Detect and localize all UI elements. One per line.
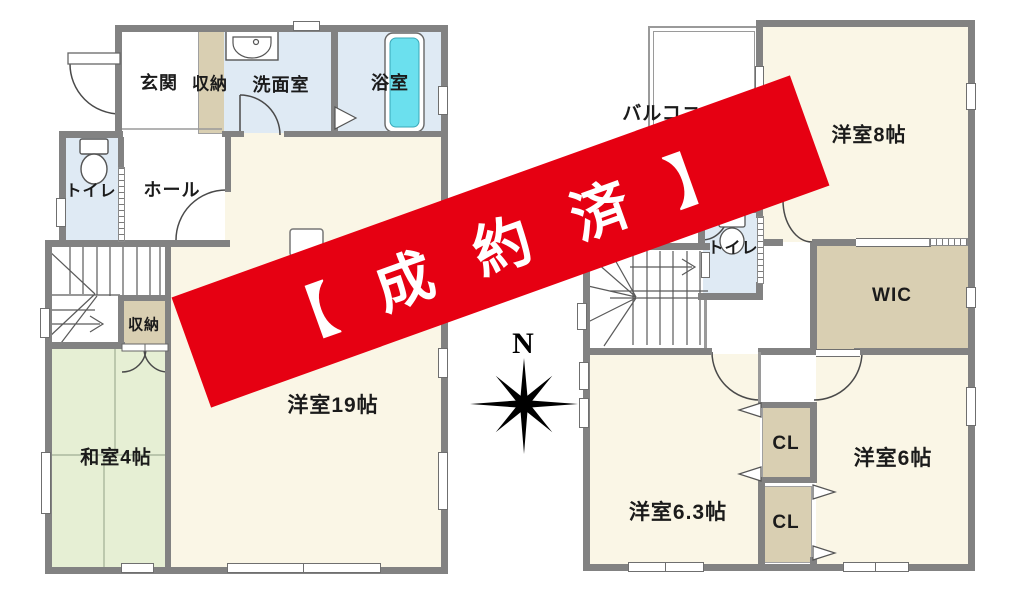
wall [331,28,338,133]
wall [854,348,975,355]
room-label-hall: ホール [144,176,201,202]
window [579,398,589,428]
wall [115,25,448,32]
wall [118,295,171,301]
wall [165,240,171,574]
bedroom6-door-opening [816,349,860,357]
window [579,362,589,390]
wall [45,342,125,349]
room-label-bathroom: 浴室 [371,69,409,95]
wall [810,557,817,565]
room-label-bedroom63: 洋室6.3帖 [629,496,727,526]
wall [45,240,230,247]
window [303,563,381,573]
wall [583,348,712,355]
window [56,198,66,227]
window [41,452,51,514]
room-label-japanese-room: 和室4帖 [80,443,152,470]
wall [284,131,448,137]
wall [758,483,765,565]
wall [115,25,122,137]
room-label-bedroom6: 洋室6帖 [854,442,933,472]
wall [810,402,817,483]
room-label-bedroom8: 洋室8帖 [831,119,906,148]
window [966,387,976,426]
room-label-washroom: 洗面室 [253,71,310,97]
wall [758,348,816,355]
wall [758,402,817,408]
wall [225,131,231,192]
wall [810,243,817,352]
window [227,563,304,573]
window [665,562,704,572]
wall [756,20,763,72]
wall [698,293,763,300]
compass-rose [470,358,578,454]
wall [118,137,124,169]
wall [967,239,975,246]
room-label-entry-storage: 収納 [192,70,228,95]
accordion-door-hatch [118,167,125,242]
wic-sliding-door [856,238,931,247]
wall [762,239,783,246]
floorplan-page: 玄関 収納 洗面室 浴室 トイレ ホール 収納 和室4帖 洋室19帖 バルコニー… [0,0,1024,596]
window [843,562,876,572]
window [966,287,976,308]
window [40,308,50,338]
wall [704,300,707,352]
window [966,83,976,110]
window [438,86,448,115]
room-label-stairs-storage: 収納 [128,314,160,335]
room-label-toilet-2f: トイレ [707,234,758,258]
window [438,348,448,378]
wall [812,239,858,246]
entrance-door-leaf [68,53,120,64]
window [293,21,320,31]
room-fill-bedroom63 [588,354,760,565]
room-label-wic: WIC [872,285,912,307]
wall [118,295,124,349]
window [577,303,587,330]
room-label-toilet-1f: トイレ [65,177,116,201]
window [121,563,154,573]
closet-door-hatch [929,238,968,246]
room-label-closet-lower: CL [772,512,799,534]
window [628,562,666,572]
wall [59,131,123,138]
window [875,562,909,572]
window [438,452,448,510]
wall [758,477,817,483]
compass-north-label: N [512,327,534,361]
room-label-closet-upper: CL [772,433,799,455]
wall [758,352,761,404]
wall [45,240,52,574]
wall [756,20,975,27]
room-label-living19: 洋室19帖 [287,389,378,419]
room-label-genkan: 玄関 [140,69,178,95]
